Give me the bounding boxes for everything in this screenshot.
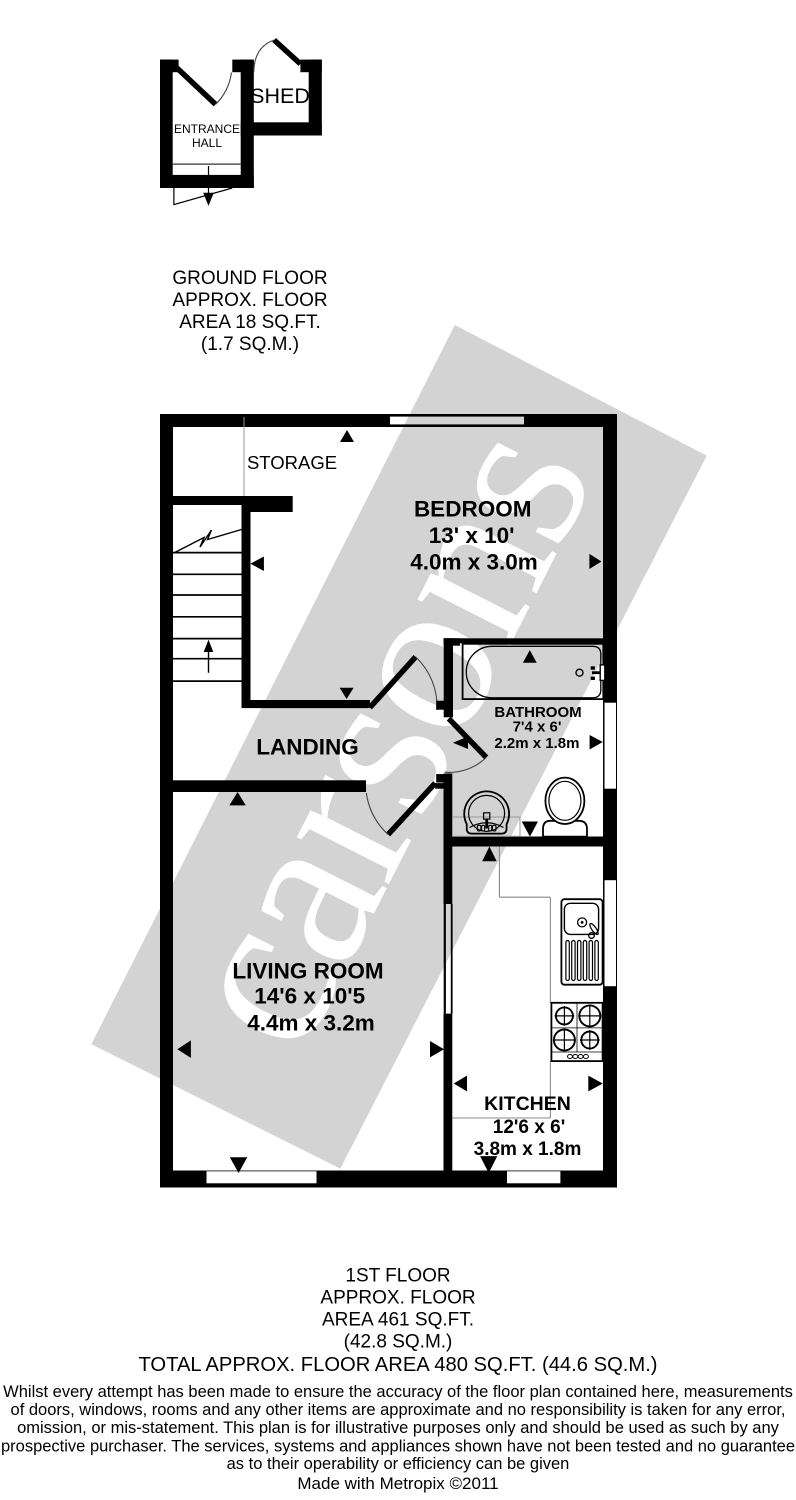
svg-text:7'4 x 6': 7'4 x 6' [513,719,562,736]
svg-text:4.4m x 3.2m: 4.4m x 3.2m [247,1011,375,1036]
svg-text:Made with Metropix ©2011: Made with Metropix ©2011 [297,1474,498,1493]
svg-text:1ST FLOOR: 1ST FLOOR [345,1266,450,1287]
svg-text:2.2m x 1.8m: 2.2m x 1.8m [494,735,579,752]
svg-text:(1.7 SQ.M.): (1.7 SQ.M.) [201,334,299,355]
svg-text:AREA 18 SQ.FT.: AREA 18 SQ.FT. [179,312,321,333]
svg-text:4.0m x 3.0m: 4.0m x 3.0m [410,550,538,575]
svg-text:13' x 10': 13' x 10' [429,523,515,548]
svg-text:14'6 x 10'5: 14'6 x 10'5 [254,984,365,1009]
svg-text:ENTRANCE: ENTRANCE [174,122,240,136]
svg-text:Whilst every attempt has been: Whilst every attempt has been made to en… [3,1383,793,1401]
svg-text:AREA 461 SQ.FT.: AREA 461 SQ.FT. [322,1310,474,1331]
svg-text:STORAGE: STORAGE [247,452,337,473]
svg-text:SHED: SHED [250,84,310,108]
svg-text:HALL: HALL [192,136,222,150]
svg-text:KITCHEN: KITCHEN [484,1093,571,1115]
svg-text:omission, or mis-statement. Th: omission, or mis-statement. This plan is… [17,1419,780,1437]
svg-text:as to their operability or eff: as to their operability or efficiency ca… [227,1455,570,1473]
svg-text:APPROX. FLOOR: APPROX. FLOOR [320,1288,475,1309]
svg-text:LIVING ROOM: LIVING ROOM [232,959,383,984]
svg-text:TOTAL APPROX. FLOOR AREA 480 S: TOTAL APPROX. FLOOR AREA 480 SQ.FT. (44.… [138,1354,657,1376]
svg-text:3.8m x 1.8m: 3.8m x 1.8m [474,1139,582,1160]
svg-text:12'6 x 6': 12'6 x 6' [493,1117,565,1138]
svg-text:(42.8 SQ.M.): (42.8 SQ.M.) [344,1332,453,1353]
svg-text:GROUND FLOOR: GROUND FLOOR [172,268,327,289]
svg-text:of doors, windows, rooms and a: of doors, windows, rooms and any other i… [11,1401,786,1419]
svg-text:BEDROOM: BEDROOM [414,497,532,522]
svg-text:prospective purchaser. The ser: prospective purchaser. The services, sys… [1,1438,795,1456]
svg-text:LANDING: LANDING [256,735,359,760]
svg-text:APPROX. FLOOR: APPROX. FLOOR [172,290,327,311]
